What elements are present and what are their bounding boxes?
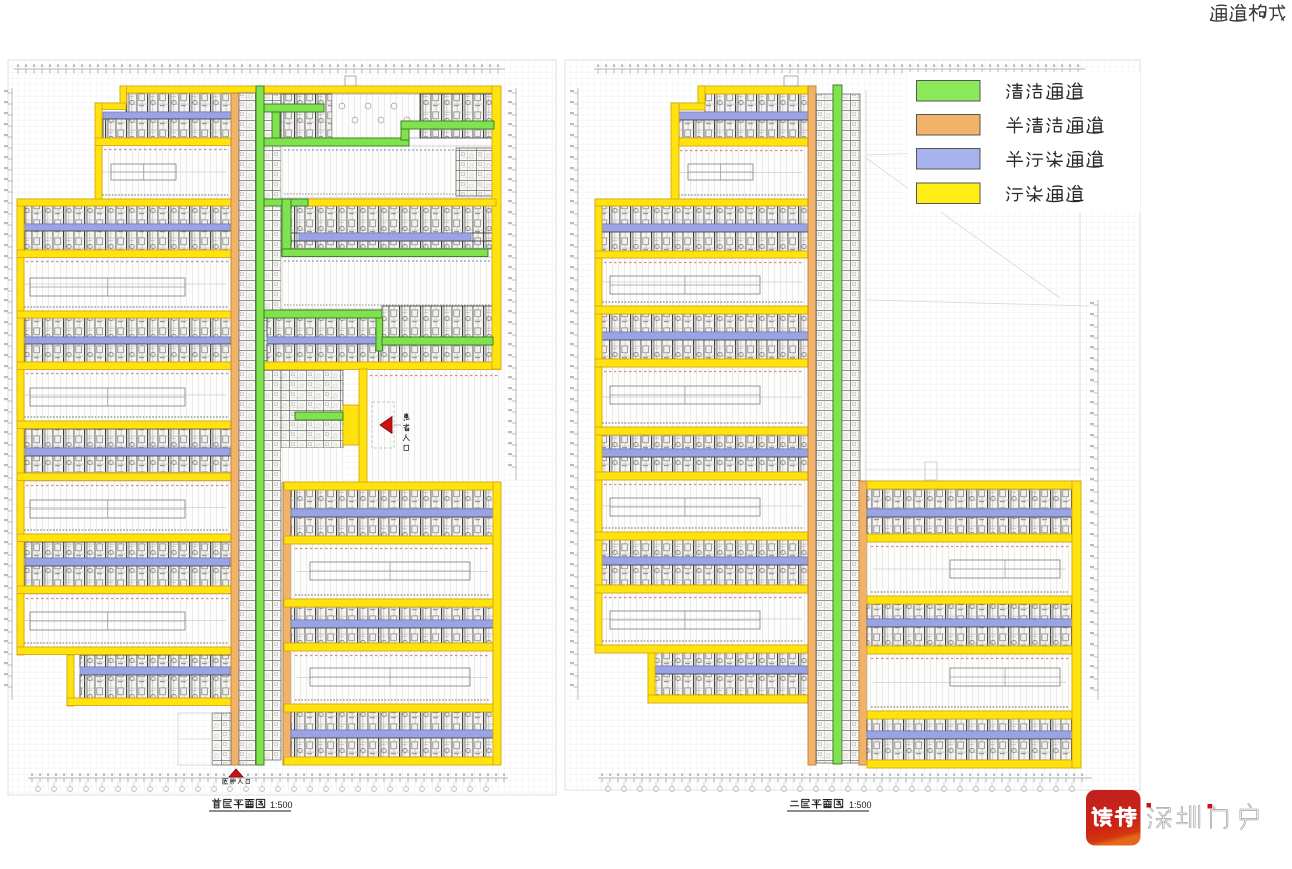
svg-text:1:500: 1:500 [270, 800, 293, 810]
svg-text:1:500: 1:500 [849, 800, 872, 810]
